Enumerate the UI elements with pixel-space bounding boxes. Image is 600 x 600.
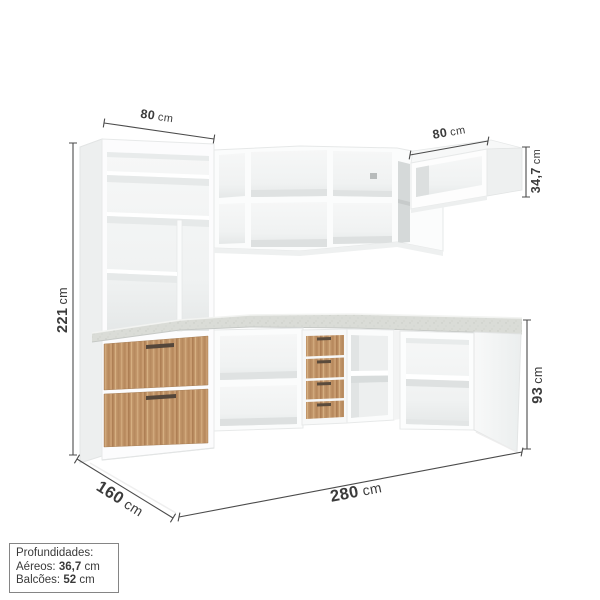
info-box-line-balcoes: Balcões: 52 cm <box>16 574 112 588</box>
info-box-title: Profundidades: <box>16 547 112 561</box>
base-cabinets <box>90 328 521 513</box>
info-label: Aéreos: <box>16 561 56 573</box>
wall-cubby <box>219 203 245 244</box>
drawer-handle-notch <box>317 360 331 364</box>
drawer-handle-notch <box>317 382 331 386</box>
vertical-divider <box>177 220 182 331</box>
base-drawer-unit <box>102 336 214 460</box>
info-value: 52 <box>63 574 76 586</box>
base-corner-unit <box>347 329 400 423</box>
drawer-front <box>104 336 208 390</box>
wall-cabinet-run <box>214 146 443 256</box>
dim-label-total-height: 221cm <box>55 287 71 333</box>
dim-label-return-width: 160cm <box>93 478 147 521</box>
opening-side-shadow <box>416 166 429 198</box>
drawer-handle-notch <box>317 337 331 341</box>
dim-label-tall-width: 80cm <box>140 107 175 125</box>
cubby-bottom-shadow <box>251 189 327 197</box>
shelf-support-bracket <box>370 173 377 179</box>
dim-line-total-height <box>69 143 77 455</box>
dim-label-base-height: 93cm <box>530 366 546 403</box>
info-box-line-aereos: Aéreos: 36,7 cm <box>16 561 112 575</box>
dim-label-right-wall-width: 80cm <box>431 122 466 142</box>
tall-cabinet-left-side-panel <box>80 139 102 463</box>
right-wall-cabinet-side-panel <box>487 148 522 196</box>
base-right-unit <box>400 331 521 452</box>
right-wall-cabinet <box>411 140 522 213</box>
product-image-canvas: 80cm 80cm 34,7cm 221cm 93cm 280cm 160cm … <box>0 0 600 600</box>
shelf-shadow <box>351 376 388 384</box>
depth-info-box: Profundidades: Aéreos: 36,7 cm Balcões: … <box>9 543 119 593</box>
cubby-bottom-shadow <box>251 239 327 247</box>
info-unit: cm <box>79 574 94 586</box>
base-open-unit <box>214 328 303 431</box>
wall-cubby <box>333 151 392 197</box>
base-four-drawer-unit <box>302 329 347 425</box>
dim-label-total-width: 280cm <box>329 478 384 506</box>
product-illustration: 80cm 80cm 34,7cm 221cm 93cm 280cm 160cm <box>0 0 600 600</box>
cubby-bottom-shadow <box>333 236 392 244</box>
dim-label-wall-height: 34,7cm <box>529 149 543 193</box>
info-label: Balcões: <box>16 574 60 586</box>
shelf <box>351 371 388 377</box>
dim-line-return-width <box>74 455 175 523</box>
info-value: 36,7 <box>59 561 81 573</box>
drawer-handle-notch <box>317 403 331 407</box>
corner-filler-panel <box>394 330 400 420</box>
wall-cubby <box>219 153 245 198</box>
dim-line-base-height <box>523 320 531 449</box>
cubby-bottom-shadow <box>333 190 392 197</box>
info-unit: cm <box>84 561 99 573</box>
